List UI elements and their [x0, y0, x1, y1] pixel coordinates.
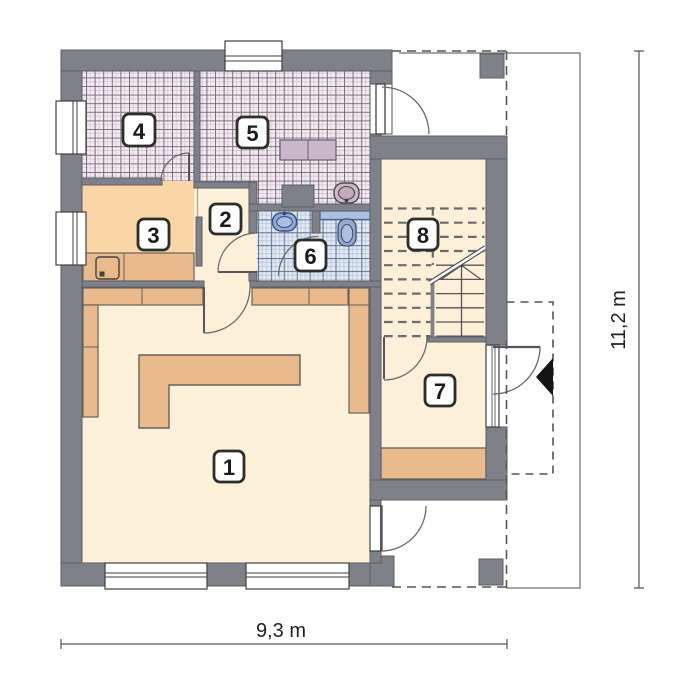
svg-text:5: 5 [246, 121, 258, 146]
svg-text:6: 6 [304, 244, 316, 269]
svg-text:3: 3 [147, 223, 159, 248]
svg-text:11,2 m: 11,2 m [608, 290, 630, 350]
svg-text:7: 7 [434, 379, 446, 404]
svg-text:2: 2 [219, 207, 231, 232]
svg-text:1: 1 [223, 455, 235, 480]
svg-text:8: 8 [417, 223, 429, 248]
svg-text:4: 4 [133, 119, 146, 144]
svg-text:9,3 m: 9,3 m [256, 620, 306, 642]
